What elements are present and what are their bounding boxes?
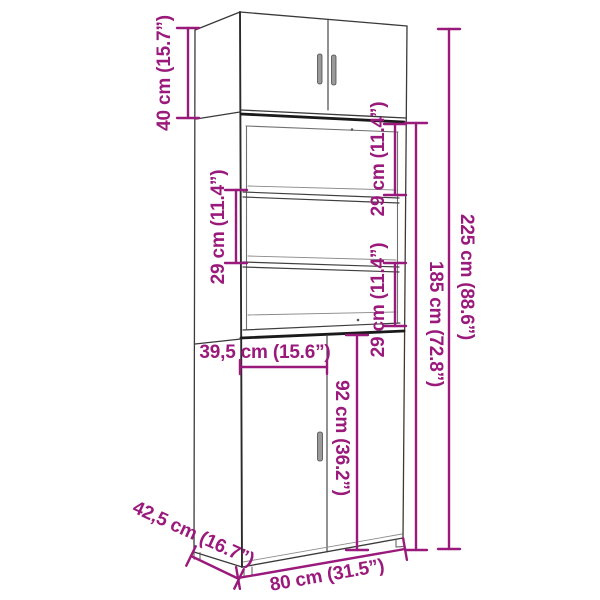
label-total-height: 225 cm (88.6”) — [456, 214, 477, 340]
front-left-corner-edge — [240, 12, 242, 567]
shelf-pin-hole-bottom — [357, 319, 360, 322]
label-left-door-width: 39,5 cm (15.6”) — [199, 342, 330, 363]
top-cabinet-right-handle — [332, 55, 337, 85]
left-panel-outer-edge — [194, 30, 195, 552]
bottom-cabinet-handle — [318, 432, 323, 461]
top-cabinet-left-handle — [318, 54, 323, 84]
dimension-labels: 40 cm (15.7”) 29 cm (11.4”) 29 cm (11.4”… — [129, 15, 477, 596]
top-left-slant-edge — [195, 12, 240, 30]
dimension-lines — [177, 28, 460, 589]
right-edge — [403, 26, 407, 538]
dim-line-top-section-height — [177, 28, 199, 118]
label-depth: 42,5 cm (16.7”) — [129, 497, 257, 570]
label-body-height: 185 cm (72.8”) — [425, 261, 446, 387]
shelf-pin-hole-top — [351, 128, 354, 131]
label-compartment-left: 29 cm (11.4”) — [208, 170, 229, 285]
label-top-section-height: 40 cm (15.7”) — [154, 15, 175, 131]
dim-line-body-height — [405, 123, 427, 550]
diagram-stage: 40 cm (15.7”) 29 cm (11.4”) 29 cm (11.4”… — [0, 0, 600, 600]
label-lower-door-height: 92 cm (36.2”) — [331, 380, 352, 496]
cabinet-dimension-diagram: 40 cm (15.7”) 29 cm (11.4”) 29 cm (11.4”… — [0, 0, 600, 600]
left-panel-joint-upper — [196, 112, 240, 119]
top-edge — [240, 12, 407, 26]
label-compartment-right-upper: 29 cm (11.4”) — [368, 102, 389, 217]
label-compartment-right-lower: 29 cm (11.4”) — [368, 243, 389, 358]
